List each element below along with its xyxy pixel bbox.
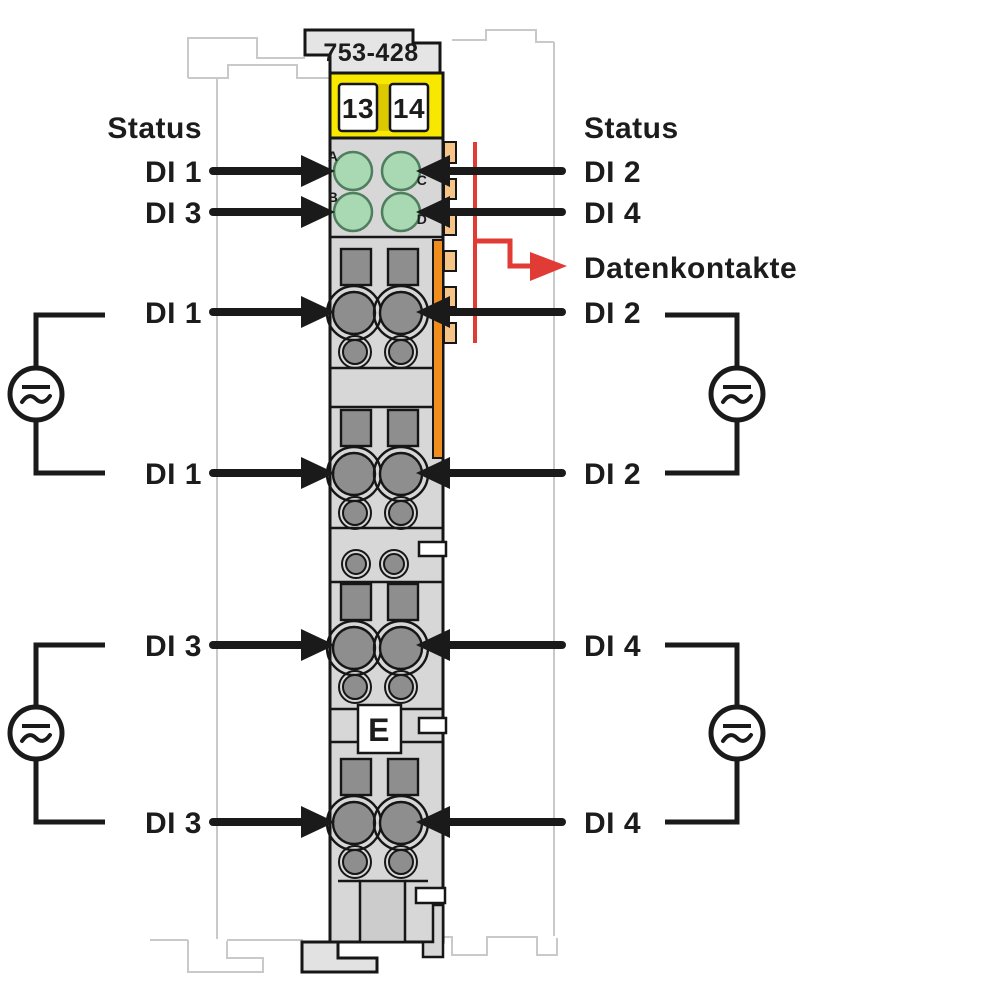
- din-rail-hook-left: [302, 942, 377, 972]
- left-labels: Status DI 1 DI 3 DI 1 DI 1 DI 3 DI 3: [107, 112, 202, 840]
- terminal-marking-block: 13 14: [330, 73, 443, 138]
- data-contacts-arrow: [530, 252, 567, 281]
- led-di1-indicator: [334, 152, 372, 190]
- ac-dc-source-icon: [10, 368, 62, 420]
- ac-dc-source-icon: [10, 707, 62, 759]
- part-number-label: 753-428: [323, 39, 418, 67]
- e-marking-label: E: [368, 712, 390, 748]
- wiring-diagram-753-428: 753-428 13 14 A B C D: [0, 0, 1000, 1000]
- label-di2-top: DI 2: [584, 297, 641, 330]
- arrow-status-di1: [213, 155, 335, 187]
- label-di2-bottom: DI 2: [584, 458, 641, 491]
- label-di2-status: DI 2: [584, 156, 641, 189]
- led-di3-indicator: [334, 193, 372, 231]
- status-label-left: Status: [107, 112, 202, 145]
- led-di2-indicator: [382, 152, 420, 190]
- label-di4-bottom: DI 4: [584, 807, 641, 840]
- terminal-13-label: 13: [342, 93, 374, 124]
- arrow-di3-top: [213, 629, 335, 661]
- arrow-di1-bottom: [213, 457, 335, 489]
- led-letter-b: B: [328, 189, 339, 205]
- arrow-status-di3: [213, 196, 335, 228]
- ac-dc-source-icon: [711, 707, 763, 759]
- label-di3-top: DI 3: [145, 630, 202, 663]
- status-label-right: Status: [584, 112, 679, 145]
- e-marking: E: [358, 705, 401, 753]
- label-di1-status: DI 1: [145, 156, 202, 189]
- led-di4-indicator: [382, 193, 420, 231]
- label-di1-bottom: DI 1: [145, 458, 202, 491]
- label-di3-bottom: DI 3: [145, 807, 202, 840]
- arrow-di1-top: [213, 296, 335, 328]
- led-letter-a: A: [328, 148, 339, 164]
- arrow-di3-bottom: [213, 806, 335, 838]
- ac-dc-source-icon: [711, 368, 763, 420]
- orange-latch-strip: [433, 240, 443, 458]
- label-di3-status: DI 3: [145, 197, 202, 230]
- terminal-14-label: 14: [393, 93, 425, 124]
- label-di4-top: DI 4: [584, 630, 641, 663]
- label-di1-top: DI 1: [145, 297, 202, 330]
- datenkontakte-label: Datenkontakte: [584, 252, 797, 285]
- label-di4-status: DI 4: [584, 197, 641, 230]
